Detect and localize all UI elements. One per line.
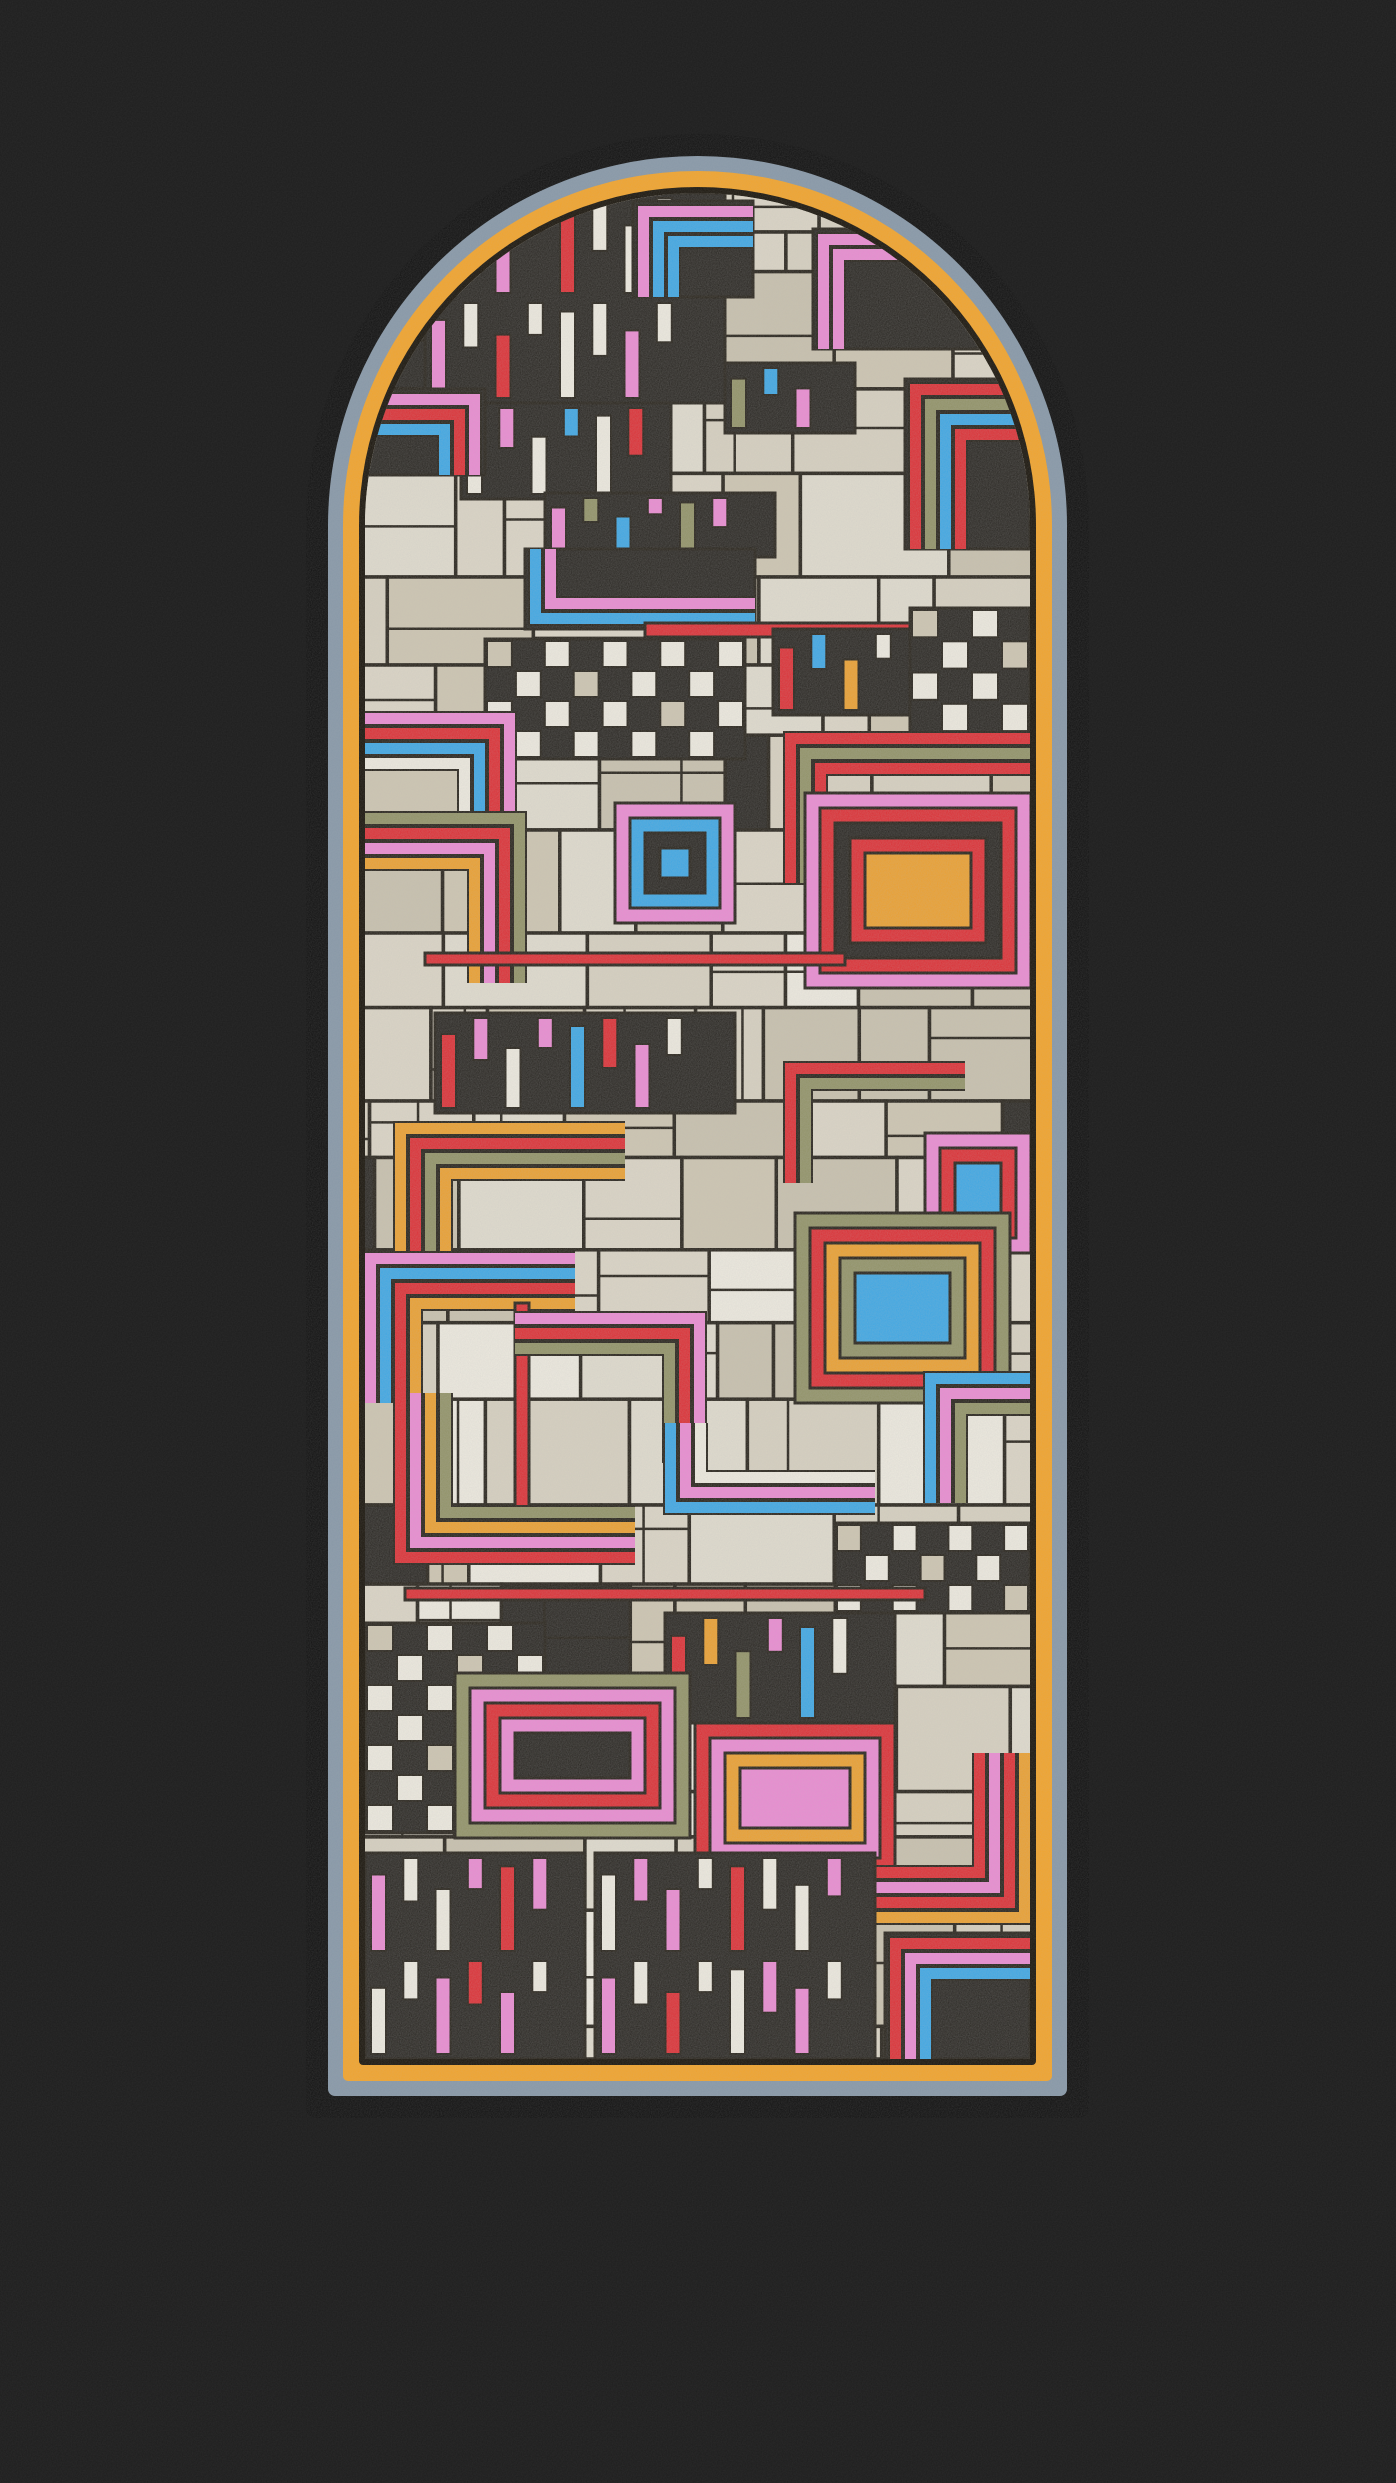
mosaic-pattern [365,193,1030,2059]
stained-glass-window [306,134,1089,2118]
lead-border-ring [359,187,1036,2065]
amber-border-ring [343,171,1052,2081]
glass-mosaic-panel [365,193,1030,2059]
page-background [0,0,1396,2483]
slate-blue-border-ring [328,156,1067,2096]
